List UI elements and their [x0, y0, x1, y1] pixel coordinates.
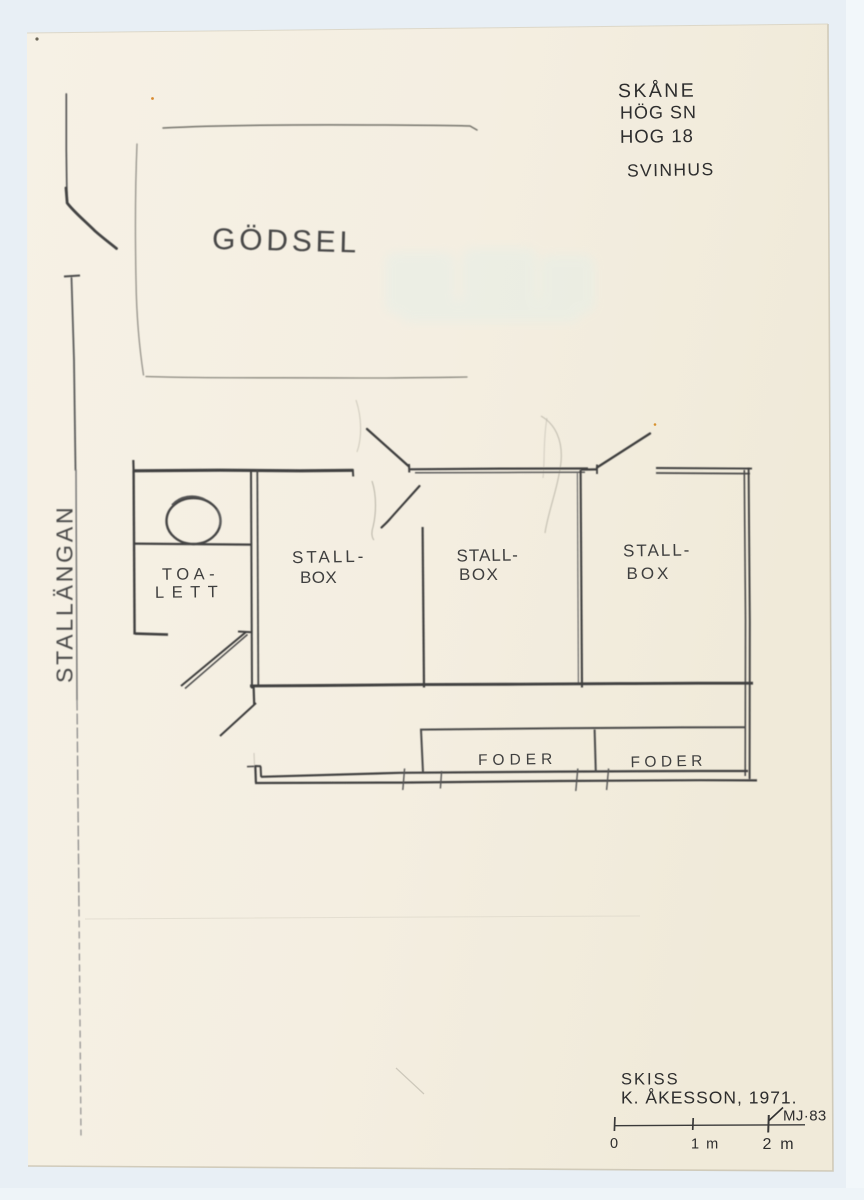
svg-text:STALL-: STALL-	[623, 540, 692, 560]
svg-text:STALL-: STALL-	[456, 545, 519, 565]
svg-text:K. ÅKESSON, 1971.: K. ÅKESSON, 1971.	[621, 1088, 798, 1108]
svg-text:MJ·83: MJ·83	[783, 1108, 827, 1125]
svg-text:FODER: FODER	[630, 753, 707, 772]
svg-text:1 m: 1 m	[691, 1137, 720, 1153]
svg-text:BOX: BOX	[627, 564, 672, 583]
svg-text:2 m: 2 m	[763, 1136, 796, 1153]
svg-text:FODER: FODER	[478, 751, 557, 769]
svg-text:GÖDSEL: GÖDSEL	[212, 223, 361, 260]
svg-text:BOX: BOX	[300, 568, 337, 587]
svg-text:HOG 18: HOG 18	[620, 125, 694, 147]
svg-text:STALLÄNGAN: STALLÄNGAN	[52, 505, 78, 683]
svg-text:SVINHUS: SVINHUS	[627, 159, 715, 181]
svg-text:HÖG SN: HÖG SN	[620, 102, 697, 123]
svg-text:BOX: BOX	[459, 565, 499, 584]
svg-text:TOA-: TOA-	[162, 565, 219, 584]
svg-text:LETT: LETT	[155, 583, 226, 602]
svg-text:0: 0	[610, 1136, 618, 1152]
svg-text:SKISS: SKISS	[621, 1071, 680, 1089]
svg-text:STALL-: STALL-	[292, 547, 367, 567]
svg-text:SKÅNE: SKÅNE	[618, 79, 696, 103]
